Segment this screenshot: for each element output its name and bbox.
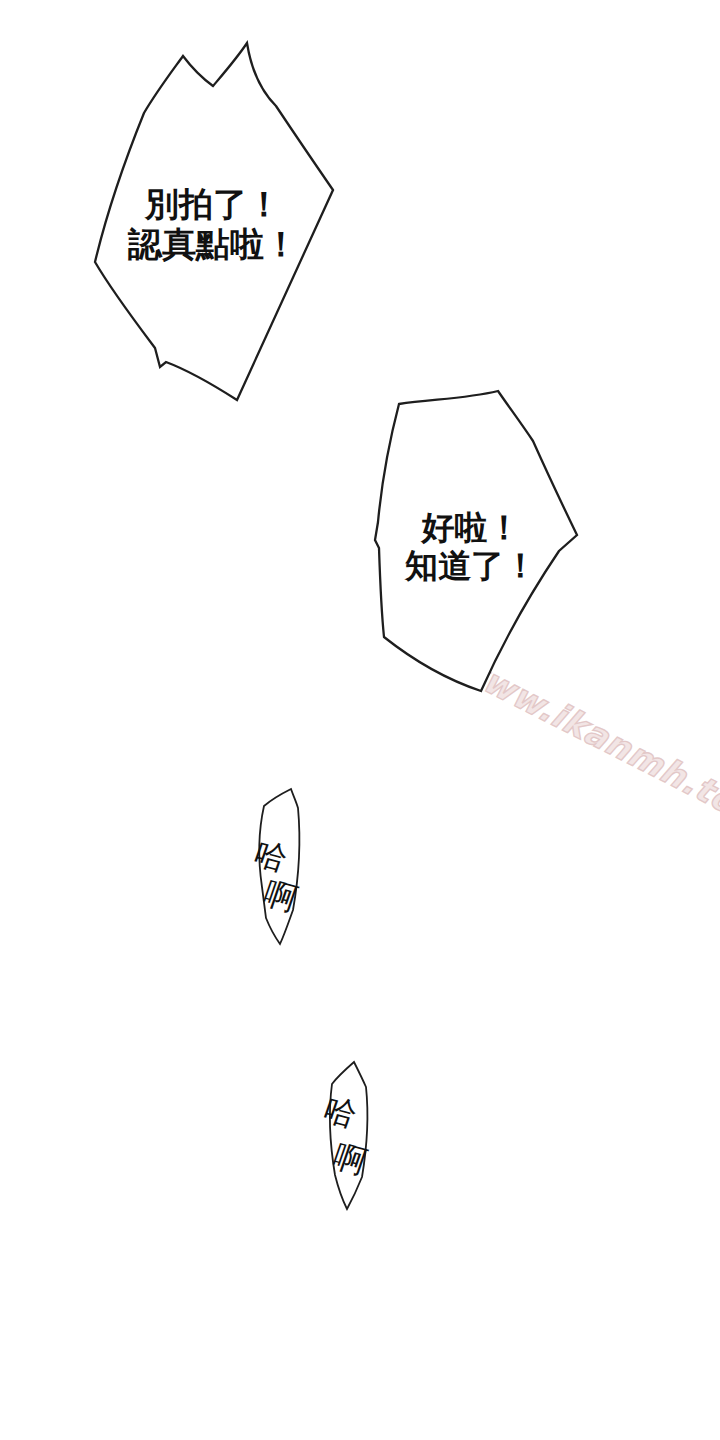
comic-page: www.ikanmh.top 別拍了！ 認真點啦！ 好啦！ 知道了！ 哈 啊 哈…	[0, 0, 720, 1440]
speech-bubble-1-line-2: 認真點啦！	[92, 224, 334, 264]
sfx-bubble-1: 哈 啊	[251, 834, 307, 915]
speech-bubble-2-line-2: 知道了！	[350, 547, 592, 585]
sfx-bubble-2: 哈 啊	[319, 1090, 376, 1178]
sfx-1-char-2: 啊	[260, 872, 307, 917]
speech-bubble-2: 好啦！ 知道了！	[350, 509, 592, 585]
sfx-2-char-1: 哈	[319, 1088, 366, 1133]
sfx-1-char-1: 哈	[250, 832, 297, 877]
speech-bubble-2-line-1: 好啦！	[350, 509, 592, 547]
speech-bubble-1: 別拍了！ 認真點啦！	[92, 184, 334, 264]
sfx-2-char-2: 啊	[329, 1135, 376, 1180]
speech-bubble-1-line-1: 別拍了！	[92, 184, 334, 224]
